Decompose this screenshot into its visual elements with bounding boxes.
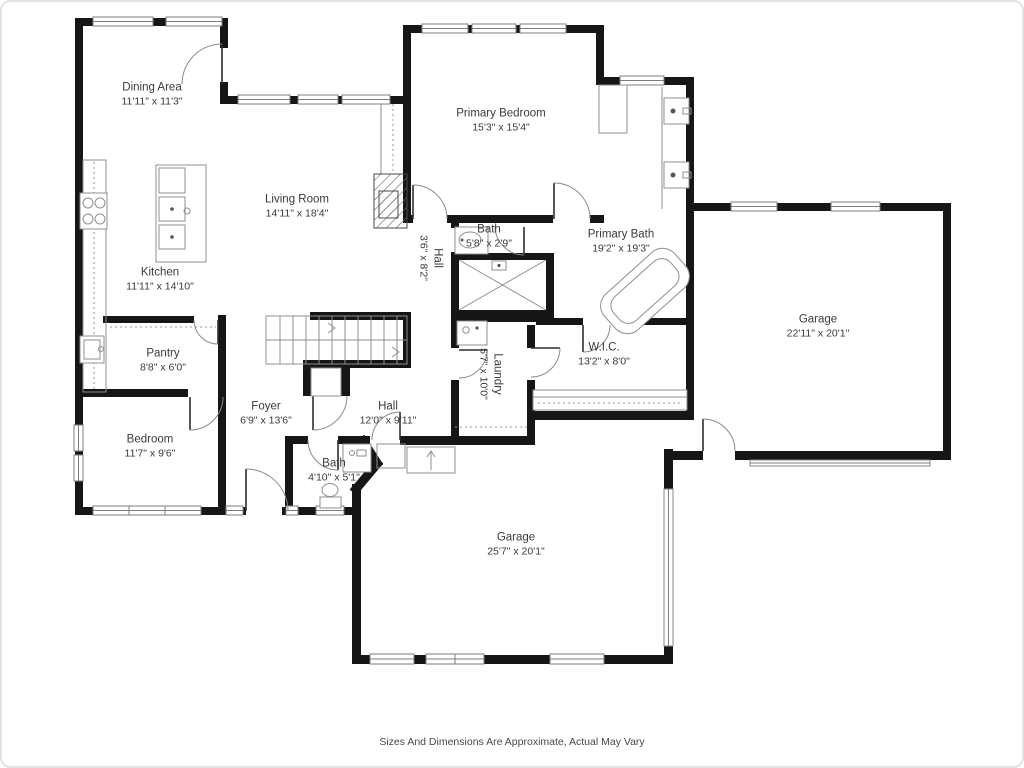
- laundry-sink: [457, 321, 487, 345]
- garage-door-bands: [664, 460, 930, 646]
- vanity-sink: [664, 98, 689, 124]
- shower: [343, 444, 371, 472]
- floor-plan-image: Dining Area11'11" x 11'3"Living Room14'1…: [0, 0, 1024, 768]
- misc-lines: [377, 444, 455, 473]
- fireplace: [374, 104, 407, 228]
- vanity-sink: [664, 162, 689, 188]
- water-closet: [599, 85, 627, 133]
- toilet: [320, 484, 341, 509]
- closet-rod: [533, 390, 687, 410]
- primary-tub: [594, 242, 696, 341]
- stairs: [266, 316, 407, 396]
- plan-disclaimer: Sizes And Dimensions Are Approximate, Ac…: [379, 736, 644, 748]
- kitchen-fixtures: [80, 160, 216, 392]
- kitchen-island: [156, 165, 206, 262]
- floor-plan-svg: [0, 0, 1024, 768]
- walk-in-shower: [459, 260, 546, 310]
